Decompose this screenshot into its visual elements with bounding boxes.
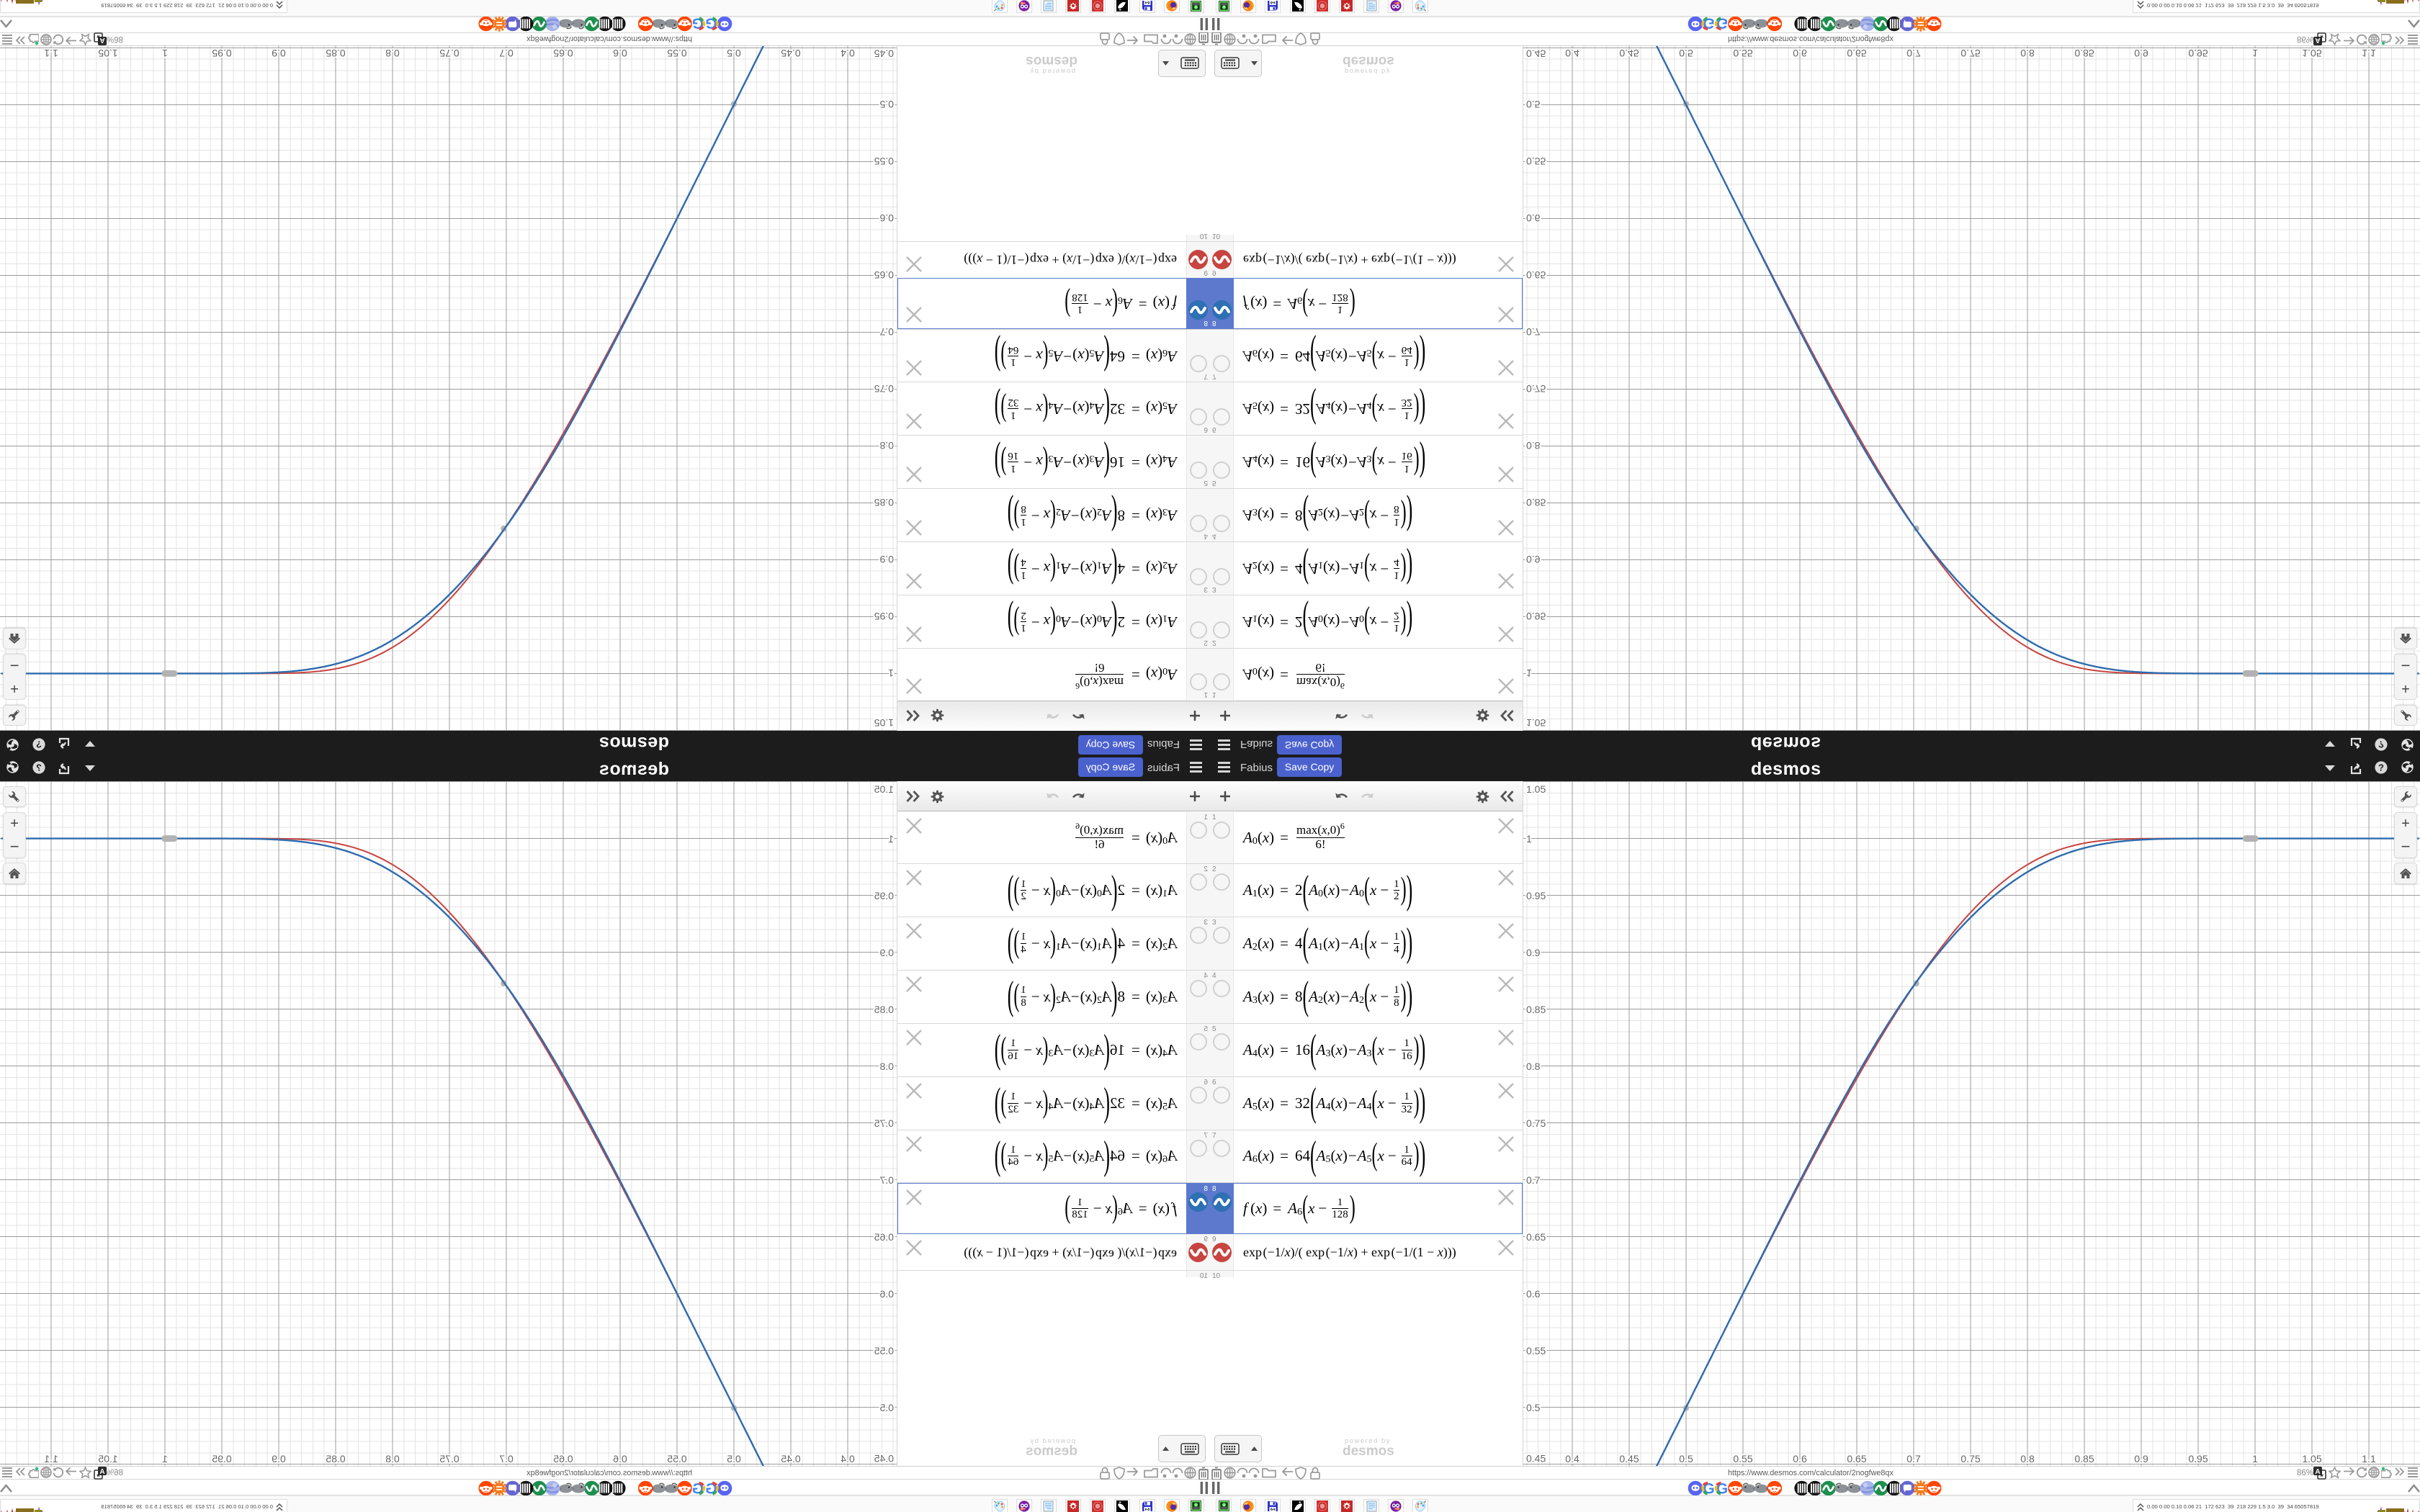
svg-text:0.85: 0.85 [874,1004,894,1015]
svg-text:0.6: 0.6 [879,1288,894,1300]
svg-text:0.65: 0.65 [553,48,573,59]
svg-text:0.6: 0.6 [1526,212,1541,224]
svg-text:0.9: 0.9 [2134,1453,2148,1464]
svg-text:1.1: 1.1 [44,48,58,59]
svg-text:0.4: 0.4 [1565,48,1579,59]
svg-text:1.1: 1.1 [2362,48,2376,59]
svg-text:0.5: 0.5 [879,99,894,110]
svg-text:1.1: 1.1 [44,1453,58,1464]
svg-text:0.7: 0.7 [499,1453,514,1464]
svg-text:0.45: 0.45 [781,48,800,59]
svg-text:1: 1 [1526,833,1532,845]
svg-text:0.85: 0.85 [326,1453,345,1464]
svg-text:0.9: 0.9 [879,947,894,958]
svg-text:0.5: 0.5 [727,48,741,59]
svg-text:0.5: 0.5 [727,1453,741,1464]
svg-text:0.9: 0.9 [1526,554,1541,565]
svg-text:0.5: 0.5 [1679,48,1693,59]
svg-text:1: 1 [2252,48,2258,59]
svg-text:0.5: 0.5 [1526,1402,1541,1413]
svg-text:0.7: 0.7 [879,326,894,338]
svg-text:0.95: 0.95 [874,890,894,901]
svg-text:0.75: 0.75 [874,383,894,395]
svg-text:0.55: 0.55 [1526,1345,1546,1356]
svg-text:0.6: 0.6 [879,212,894,224]
svg-text:0.85: 0.85 [2074,48,2094,59]
svg-text:0.65: 0.65 [1526,1231,1546,1243]
svg-text:0.9: 0.9 [272,48,286,59]
svg-text:0.85: 0.85 [1526,1004,1546,1015]
svg-text:1: 1 [1526,667,1532,679]
svg-text:0.6: 0.6 [613,1453,627,1464]
svg-text:0.95: 0.95 [2188,1453,2208,1464]
svg-text:1: 1 [162,1453,168,1464]
svg-text:?: ? [36,739,42,750]
svg-text:0.5: 0.5 [1679,1453,1693,1464]
svg-text:0.8: 0.8 [1526,440,1541,451]
svg-text:1.1: 1.1 [2362,1453,2376,1464]
svg-text:0.55: 0.55 [874,1345,894,1356]
svg-text:1: 1 [888,833,894,845]
svg-text:1.05: 1.05 [2302,48,2321,59]
svg-text:0.4: 0.4 [841,48,855,59]
svg-text:0.7: 0.7 [1906,1453,1921,1464]
svg-text:64: 64 [1144,1507,1149,1512]
svg-text:0.7: 0.7 [879,1174,894,1186]
svg-text:0.8: 0.8 [385,48,400,59]
svg-text:0.6: 0.6 [613,48,627,59]
svg-text:1: 1 [2252,1453,2258,1464]
svg-text:0.8: 0.8 [2020,48,2035,59]
svg-text:0.6: 0.6 [1793,1453,1807,1464]
svg-text:1: 1 [162,48,168,59]
svg-text:0.6: 0.6 [1526,1288,1541,1300]
svg-text:0.85: 0.85 [874,497,894,508]
svg-text:0.8: 0.8 [879,440,894,451]
svg-text:0.4: 0.4 [841,1453,855,1464]
svg-text:0.65: 0.65 [874,269,894,281]
svg-text:1.05: 1.05 [98,1453,117,1464]
svg-text:A: A [2315,36,2320,44]
svg-text:0.95: 0.95 [2188,48,2208,59]
svg-text:0.95: 0.95 [1526,611,1546,622]
svg-text:0.45: 0.45 [1619,48,1639,59]
svg-text:A: A [99,36,104,44]
svg-text:0.45: 0.45 [1619,1453,1639,1464]
svg-text:0.8: 0.8 [2020,1453,2035,1464]
svg-text:0.85: 0.85 [1526,497,1546,508]
svg-text:0.9: 0.9 [2134,48,2148,59]
svg-text:0.95: 0.95 [874,611,894,622]
svg-text:0.7: 0.7 [1526,1174,1541,1186]
svg-text:0.75: 0.75 [1960,1453,1980,1464]
svg-text:0.45: 0.45 [874,48,894,60]
svg-text:1.05: 1.05 [874,783,894,795]
svg-text:0.55: 0.55 [1733,1453,1752,1464]
svg-text:0.55: 0.55 [1733,48,1752,59]
svg-text:0.5: 0.5 [1526,99,1541,110]
svg-text:0.7: 0.7 [1906,48,1921,59]
svg-text:0.9: 0.9 [879,554,894,565]
svg-text:0.75: 0.75 [439,48,459,59]
svg-text:A: A [99,1468,104,1476]
svg-text:0.65: 0.65 [1526,269,1546,281]
svg-text:0.65: 0.65 [1847,48,1866,59]
svg-text:1.05: 1.05 [874,717,894,729]
svg-text:0.8: 0.8 [879,1061,894,1072]
svg-text:0.45: 0.45 [874,1453,894,1464]
svg-text:0.85: 0.85 [326,48,345,59]
svg-text:0.45: 0.45 [781,1453,800,1464]
svg-text:0.45: 0.45 [1526,48,1546,60]
svg-text:1.05: 1.05 [1526,783,1546,795]
svg-text:1: 1 [888,667,894,679]
svg-text:0.75: 0.75 [874,1117,894,1129]
svg-text:64: 64 [1144,1,1149,6]
svg-text:0.45: 0.45 [1526,1453,1546,1464]
svg-text:0.55: 0.55 [1526,156,1546,167]
svg-text:0.85: 0.85 [2074,1453,2094,1464]
svg-text:?: ? [2378,739,2384,750]
svg-text:0.7: 0.7 [499,48,514,59]
svg-text:0.95: 0.95 [1526,890,1546,901]
svg-text:0.65: 0.65 [874,1231,894,1243]
svg-text:0.55: 0.55 [667,1453,686,1464]
svg-text:0.6: 0.6 [1793,48,1807,59]
svg-text:0.9: 0.9 [272,1453,286,1464]
svg-text:1.05: 1.05 [1526,717,1546,729]
svg-text:0.7: 0.7 [1526,326,1541,338]
svg-text:64: 64 [1270,1,1276,6]
svg-text:0.55: 0.55 [667,48,686,59]
svg-text:0.75: 0.75 [439,1453,459,1464]
svg-text:?: ? [36,762,42,773]
svg-text:0.9: 0.9 [1526,947,1541,958]
svg-text:1.05: 1.05 [98,48,117,59]
svg-text:64: 64 [1270,1507,1276,1512]
svg-text:0.75: 0.75 [1526,1117,1546,1129]
svg-text:0.4: 0.4 [1565,1453,1579,1464]
svg-text:0.95: 0.95 [212,48,231,59]
svg-text:0.95: 0.95 [212,1453,231,1464]
svg-text:0.8: 0.8 [385,1453,400,1464]
svg-text:0.5: 0.5 [879,1402,894,1413]
svg-text:?: ? [2378,762,2384,773]
svg-text:1.05: 1.05 [2302,1453,2321,1464]
svg-text:0.75: 0.75 [1526,383,1546,395]
svg-text:0.65: 0.65 [1847,1453,1866,1464]
svg-text:0.65: 0.65 [553,1453,573,1464]
svg-text:0.8: 0.8 [1526,1061,1541,1072]
svg-text:0.55: 0.55 [874,156,894,167]
svg-text:0.75: 0.75 [1960,48,1980,59]
svg-text:A: A [2315,1468,2320,1476]
